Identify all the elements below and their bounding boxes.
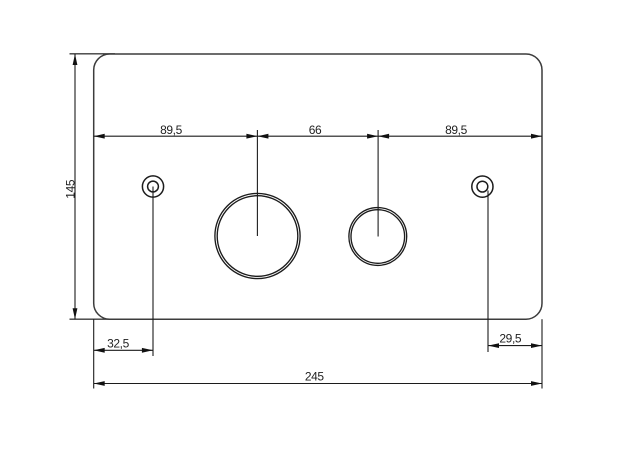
svg-text:145: 145: [63, 179, 77, 199]
svg-text:66: 66: [309, 123, 322, 137]
svg-text:89,5: 89,5: [445, 123, 467, 137]
svg-text:29,5: 29,5: [499, 331, 521, 345]
svg-text:89,5: 89,5: [160, 123, 182, 137]
svg-text:245: 245: [305, 370, 325, 384]
svg-text:32,5: 32,5: [107, 336, 129, 350]
